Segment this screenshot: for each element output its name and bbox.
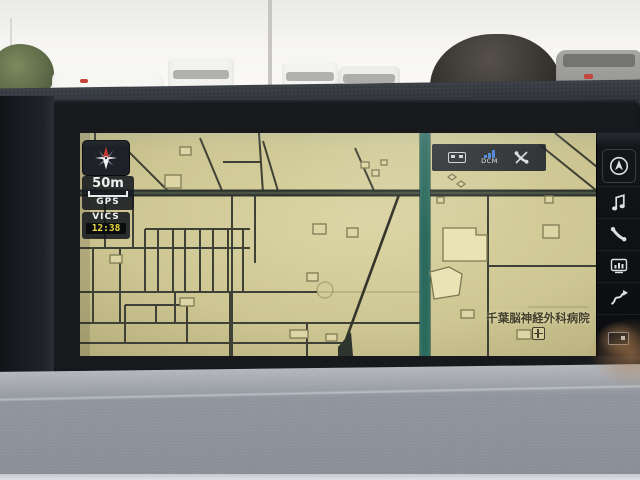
- dashboard-left: [0, 96, 54, 378]
- sidebar-item-display[interactable]: [597, 321, 640, 357]
- dcm-signal-icon: DCM: [481, 150, 498, 165]
- compass-button[interactable]: [82, 140, 130, 176]
- status-bar: DCM: [432, 144, 546, 171]
- current-location-icon: [602, 149, 636, 183]
- car-interior-photo: 50m GPS VICS 12:38 DCM: [0, 0, 640, 480]
- vehicle-info-icon: [610, 258, 628, 274]
- sidebar-item-audio[interactable]: [597, 187, 640, 219]
- dashboard-lower: [0, 364, 640, 480]
- vics-label: VICS: [82, 212, 130, 223]
- phone-icon: [609, 225, 628, 244]
- compass-north-icon: [91, 144, 121, 172]
- media-source-icon: [448, 152, 466, 163]
- map-scale-label: 50m: [82, 177, 134, 191]
- route-icon: [609, 289, 629, 307]
- display-off-icon: [608, 332, 629, 345]
- dashboard-front-edge: [0, 474, 640, 480]
- sidebar-item-route[interactable]: [597, 283, 640, 315]
- utility-pole: [268, 0, 272, 86]
- vics-time: 12:38: [86, 223, 126, 234]
- nav-sidebar: [596, 133, 640, 356]
- phone-disabled-icon: [513, 149, 530, 166]
- map-scale-control[interactable]: 50m GPS: [82, 176, 134, 210]
- sidebar-item-phone[interactable]: [597, 219, 640, 251]
- sidebar-item-vehicle-info[interactable]: [597, 251, 640, 283]
- map-view[interactable]: 50m GPS VICS 12:38 DCM: [80, 133, 596, 356]
- poi-label: 千葉脳神経外科病院: [448, 310, 596, 326]
- nav-screen: 50m GPS VICS 12:38 DCM: [80, 133, 640, 356]
- vics-panel: VICS 12:38: [82, 212, 130, 239]
- gps-label: GPS: [82, 197, 134, 208]
- map-highlighted-road: [421, 133, 429, 356]
- hospital-icon: [532, 327, 545, 340]
- poi-hospital: 千葉脳神経外科病院: [448, 310, 596, 340]
- dcm-label: DCM: [481, 158, 498, 165]
- sidebar-item-current-location[interactable]: [597, 145, 640, 187]
- music-note-icon: [610, 193, 628, 213]
